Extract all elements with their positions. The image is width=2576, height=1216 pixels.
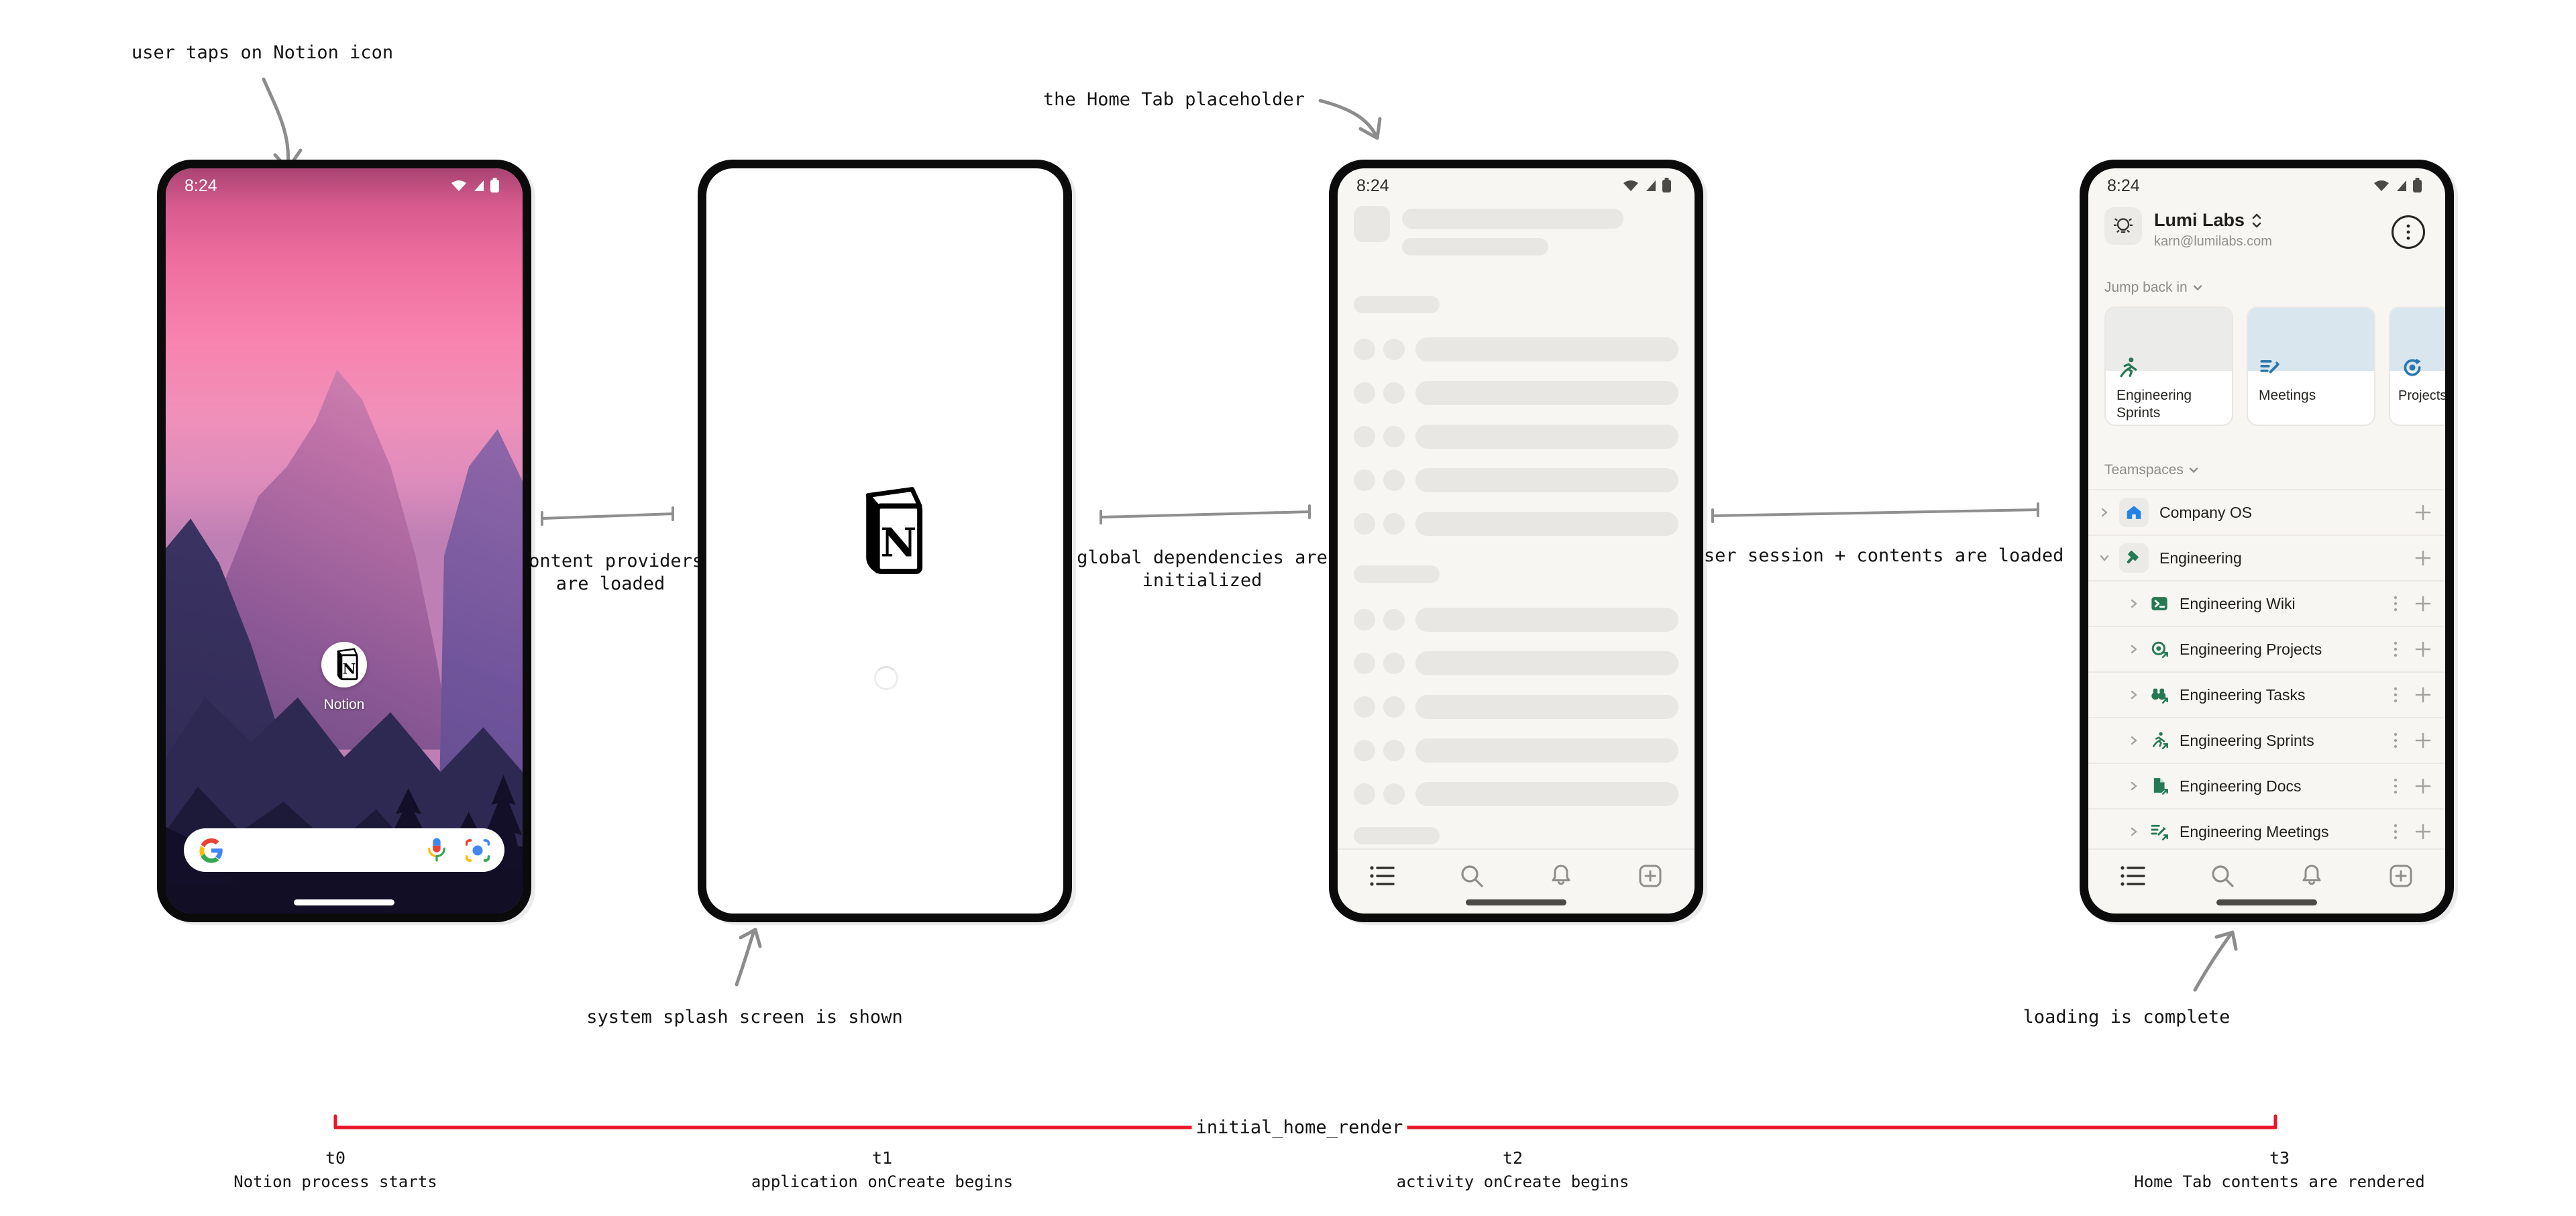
doc-icon bbox=[2150, 777, 2169, 795]
chevron-down-icon bbox=[2188, 464, 2200, 476]
row-label: Company OS bbox=[2159, 504, 2252, 522]
tab-notifications[interactable] bbox=[1516, 863, 1605, 889]
annotation-global-deps: global dependencies are initialized bbox=[1061, 547, 1343, 592]
timeline-title: initial_home_render bbox=[1192, 1117, 1407, 1138]
wifi-icon bbox=[1623, 180, 1638, 191]
row-engineering-meetings[interactable]: Engineering Meetings bbox=[2088, 808, 2445, 854]
chevron-right-icon[interactable] bbox=[2098, 506, 2111, 518]
bottom-nav bbox=[2088, 848, 2445, 902]
row-label: Engineering Projects bbox=[2180, 641, 2322, 659]
wifi-icon bbox=[451, 180, 466, 191]
row-label: Engineering Sprints bbox=[2180, 732, 2314, 750]
binoculars-icon bbox=[2150, 685, 2169, 704]
skeleton-row bbox=[1354, 337, 1678, 362]
tab-home[interactable] bbox=[1338, 864, 1427, 888]
add-icon[interactable] bbox=[2414, 732, 2432, 749]
chevron-down-icon bbox=[2192, 282, 2204, 294]
measure-line-1 bbox=[542, 514, 673, 518]
phone-loaded: 8:24 Lumi Labs karn@lum bbox=[2080, 160, 2454, 922]
status-bar: 8:24 bbox=[1338, 168, 1695, 199]
more-options-button[interactable] bbox=[2392, 215, 2425, 249]
row-label: Engineering Tasks bbox=[2180, 686, 2306, 704]
signal-icon bbox=[474, 180, 484, 191]
workspace-avatar[interactable] bbox=[2104, 207, 2142, 245]
card-label: Projects bbox=[2398, 387, 2445, 404]
home-tab-screen: 8:24 Lumi Labs karn@lum bbox=[2088, 168, 2445, 914]
mic-icon[interactable] bbox=[425, 837, 448, 864]
row-label: Engineering bbox=[2159, 549, 2242, 567]
tap-arrow bbox=[264, 79, 288, 168]
svg-text:N: N bbox=[343, 661, 356, 677]
placeholder-arrow bbox=[1320, 101, 1377, 137]
skeleton-section-label bbox=[1354, 296, 1440, 313]
kebab-icon[interactable] bbox=[2393, 732, 2398, 749]
status-icons bbox=[1622, 177, 1678, 195]
battery-icon bbox=[2413, 180, 2422, 192]
status-icons bbox=[450, 177, 506, 195]
hammer-icon bbox=[2119, 543, 2149, 573]
chevron-right-icon[interactable] bbox=[2127, 734, 2141, 747]
home-indicator[interactable] bbox=[294, 899, 394, 905]
timeline-t3: t3 bbox=[2269, 1148, 2290, 1168]
signal-icon bbox=[2397, 180, 2406, 191]
timeline-t0-desc: Notion process starts bbox=[233, 1172, 437, 1191]
chevron-right-icon[interactable] bbox=[2127, 780, 2141, 792]
row-engineering-wiki[interactable]: Engineering Wiki bbox=[2088, 580, 2445, 626]
splash-screen: N bbox=[706, 168, 1063, 914]
workspace-name: Lumi Labs bbox=[2154, 210, 2245, 231]
skeleton-row bbox=[1354, 695, 1678, 719]
row-engineering[interactable]: Engineering bbox=[2088, 535, 2445, 580]
skeleton-section-label bbox=[1354, 565, 1440, 583]
jump-back-in-cards: Engineering Sprints Meetings bbox=[2104, 307, 2445, 427]
home-indicator[interactable] bbox=[2216, 899, 2317, 905]
skeleton-row bbox=[1354, 608, 1678, 632]
svg-text:N: N bbox=[880, 519, 916, 565]
battery-icon bbox=[490, 180, 499, 192]
clock: 8:24 bbox=[1356, 176, 1389, 196]
workspace-switcher-icon bbox=[2250, 212, 2263, 229]
section-teamspaces[interactable]: Teamspaces bbox=[2104, 462, 2200, 478]
doc-pencil-icon bbox=[2259, 356, 2282, 379]
chevron-down-icon[interactable] bbox=[2098, 552, 2111, 564]
annotation-home-tab-placeholder: the Home Tab placeholder bbox=[1043, 89, 1305, 111]
runner-icon bbox=[2116, 356, 2139, 379]
signal-icon bbox=[1646, 180, 1656, 191]
launcher-screen: 8:24 N Notion bbox=[166, 168, 523, 914]
card-meetings[interactable]: Meetings bbox=[2247, 307, 2375, 426]
notion-splash-logo: N bbox=[845, 486, 924, 581]
timeline-t0: t0 bbox=[325, 1148, 345, 1168]
splash-arrow bbox=[737, 931, 754, 985]
target-icon bbox=[2150, 640, 2169, 659]
kebab-icon[interactable] bbox=[2393, 641, 2398, 658]
tab-notifications[interactable] bbox=[2267, 863, 2356, 889]
loading-arrow bbox=[2195, 934, 2231, 990]
add-icon[interactable] bbox=[2414, 823, 2432, 840]
skeleton-avatar bbox=[1354, 206, 1390, 242]
card-label: Meetings bbox=[2259, 387, 2369, 404]
chevron-right-icon[interactable] bbox=[2127, 826, 2141, 838]
chevron-right-icon[interactable] bbox=[2127, 598, 2141, 610]
tab-new-page[interactable] bbox=[2356, 863, 2445, 889]
row-engineering-sprints[interactable]: Engineering Sprints bbox=[2088, 717, 2445, 763]
home-indicator[interactable] bbox=[1466, 899, 1566, 905]
tab-home[interactable] bbox=[2088, 864, 2178, 888]
battery-icon bbox=[1662, 180, 1671, 192]
wifi-icon bbox=[2374, 180, 2389, 191]
jump-back-in-label: Jump back in bbox=[2104, 280, 2188, 296]
row-engineering-tasks[interactable]: Engineering Tasks bbox=[2088, 671, 2445, 717]
skeleton-row bbox=[1354, 738, 1678, 763]
bottom-nav bbox=[1338, 848, 1695, 902]
skeleton-row bbox=[1354, 782, 1678, 806]
add-icon[interactable] bbox=[2414, 595, 2432, 612]
notion-logo: N bbox=[329, 648, 359, 681]
annotation-content-providers: content providers are loaded bbox=[503, 550, 718, 596]
skeleton-row bbox=[1354, 425, 1678, 449]
add-icon[interactable] bbox=[2414, 686, 2432, 704]
clock: 8:24 bbox=[2107, 176, 2140, 196]
tab-search[interactable] bbox=[2178, 863, 2267, 889]
row-label: Engineering Docs bbox=[2180, 777, 2302, 795]
status-bar: 8:24 bbox=[166, 168, 523, 199]
chevron-right-icon[interactable] bbox=[2127, 689, 2141, 701]
section-jump-back-in[interactable]: Jump back in bbox=[2104, 280, 2204, 296]
timeline-t3-desc: Home Tab contents are rendered bbox=[2134, 1172, 2424, 1191]
skeleton-title-bar bbox=[1402, 209, 1623, 229]
placeholder-screen: 8:24 bbox=[1338, 168, 1695, 914]
add-icon[interactable] bbox=[2414, 504, 2432, 521]
measure-line-3 bbox=[1713, 510, 2038, 516]
status-bar: 8:24 bbox=[2088, 168, 2445, 199]
loading-spinner bbox=[874, 666, 898, 690]
row-company-os[interactable]: Company OS bbox=[2088, 489, 2445, 535]
skeleton-row bbox=[1354, 381, 1678, 405]
timeline-t2: t2 bbox=[1503, 1148, 1523, 1168]
google-logo[interactable] bbox=[199, 838, 224, 863]
annotation-loading-complete: loading is complete bbox=[2023, 1006, 2231, 1029]
skeleton-section-label bbox=[1354, 827, 1440, 844]
house-icon bbox=[2119, 498, 2149, 527]
google-search-bar[interactable] bbox=[184, 828, 504, 872]
teamspaces-label: Teamspaces bbox=[2104, 462, 2184, 478]
status-icons bbox=[2373, 177, 2429, 195]
phone-splash: N bbox=[698, 160, 1072, 922]
annotation-splash-shown: system splash screen is shown bbox=[586, 1006, 902, 1029]
chevron-right-icon[interactable] bbox=[2127, 643, 2141, 655]
tab-new-page[interactable] bbox=[1605, 863, 1695, 889]
card-engineering-sprints[interactable]: Engineering Sprints bbox=[2104, 307, 2233, 426]
workspace-name-row[interactable]: Lumi Labs bbox=[2154, 210, 2263, 231]
timeline-t1: t1 bbox=[872, 1148, 892, 1168]
kebab-icon[interactable] bbox=[2393, 686, 2398, 704]
timeline-t1-desc: application onCreate begins bbox=[751, 1172, 1013, 1191]
lightbulb-icon bbox=[2112, 215, 2135, 237]
notion-app-icon[interactable]: N bbox=[321, 642, 367, 687]
google-lens-icon[interactable] bbox=[466, 838, 490, 863]
card-label: Engineering Sprints bbox=[2116, 387, 2226, 422]
annotation-user-taps: user taps on Notion icon bbox=[131, 42, 393, 64]
skeleton-subtitle-bar bbox=[1402, 238, 1548, 256]
meeting-icon bbox=[2150, 822, 2169, 841]
kebab-icon bbox=[2406, 223, 2411, 241]
row-engineering-projects[interactable]: Engineering Projects bbox=[2088, 626, 2445, 671]
kebab-icon[interactable] bbox=[2393, 777, 2398, 795]
terminal-icon bbox=[2150, 594, 2169, 613]
card-projects[interactable]: Projects bbox=[2389, 307, 2445, 426]
add-icon[interactable] bbox=[2414, 641, 2432, 658]
clock: 8:24 bbox=[184, 176, 217, 196]
phone-launcher: 8:24 N Notion bbox=[157, 160, 531, 922]
timeline-t2-desc: activity onCreate begins bbox=[1397, 1172, 1629, 1191]
notion-app-label: Notion bbox=[166, 697, 523, 713]
row-engineering-docs[interactable]: Engineering Docs bbox=[2088, 763, 2445, 808]
row-label: Engineering Wiki bbox=[2180, 595, 2296, 613]
tab-search[interactable] bbox=[1427, 863, 1516, 889]
annotation-user-session: user session + contents are loaded bbox=[1693, 545, 2064, 567]
teamspace-tree: Company OS Engineering bbox=[2088, 489, 2445, 854]
measure-line-2 bbox=[1101, 512, 1309, 517]
row-label: Engineering Meetings bbox=[2180, 823, 2328, 841]
workspace-email: karn@lumilabs.com bbox=[2154, 234, 2272, 250]
startup-timeline-diagram: user taps on Notion icon the Home Tab pl… bbox=[0, 0, 2576, 1216]
add-icon[interactable] bbox=[2414, 549, 2432, 567]
skeleton-row bbox=[1354, 468, 1678, 492]
skeleton-row bbox=[1354, 651, 1678, 675]
kebab-icon[interactable] bbox=[2393, 823, 2398, 840]
kebab-icon[interactable] bbox=[2393, 595, 2398, 612]
add-icon[interactable] bbox=[2414, 777, 2432, 795]
sync-icon bbox=[2401, 356, 2424, 379]
phone-placeholder: 8:24 bbox=[1329, 160, 1703, 922]
skeleton-row bbox=[1354, 512, 1678, 536]
runner-icon bbox=[2150, 731, 2169, 750]
